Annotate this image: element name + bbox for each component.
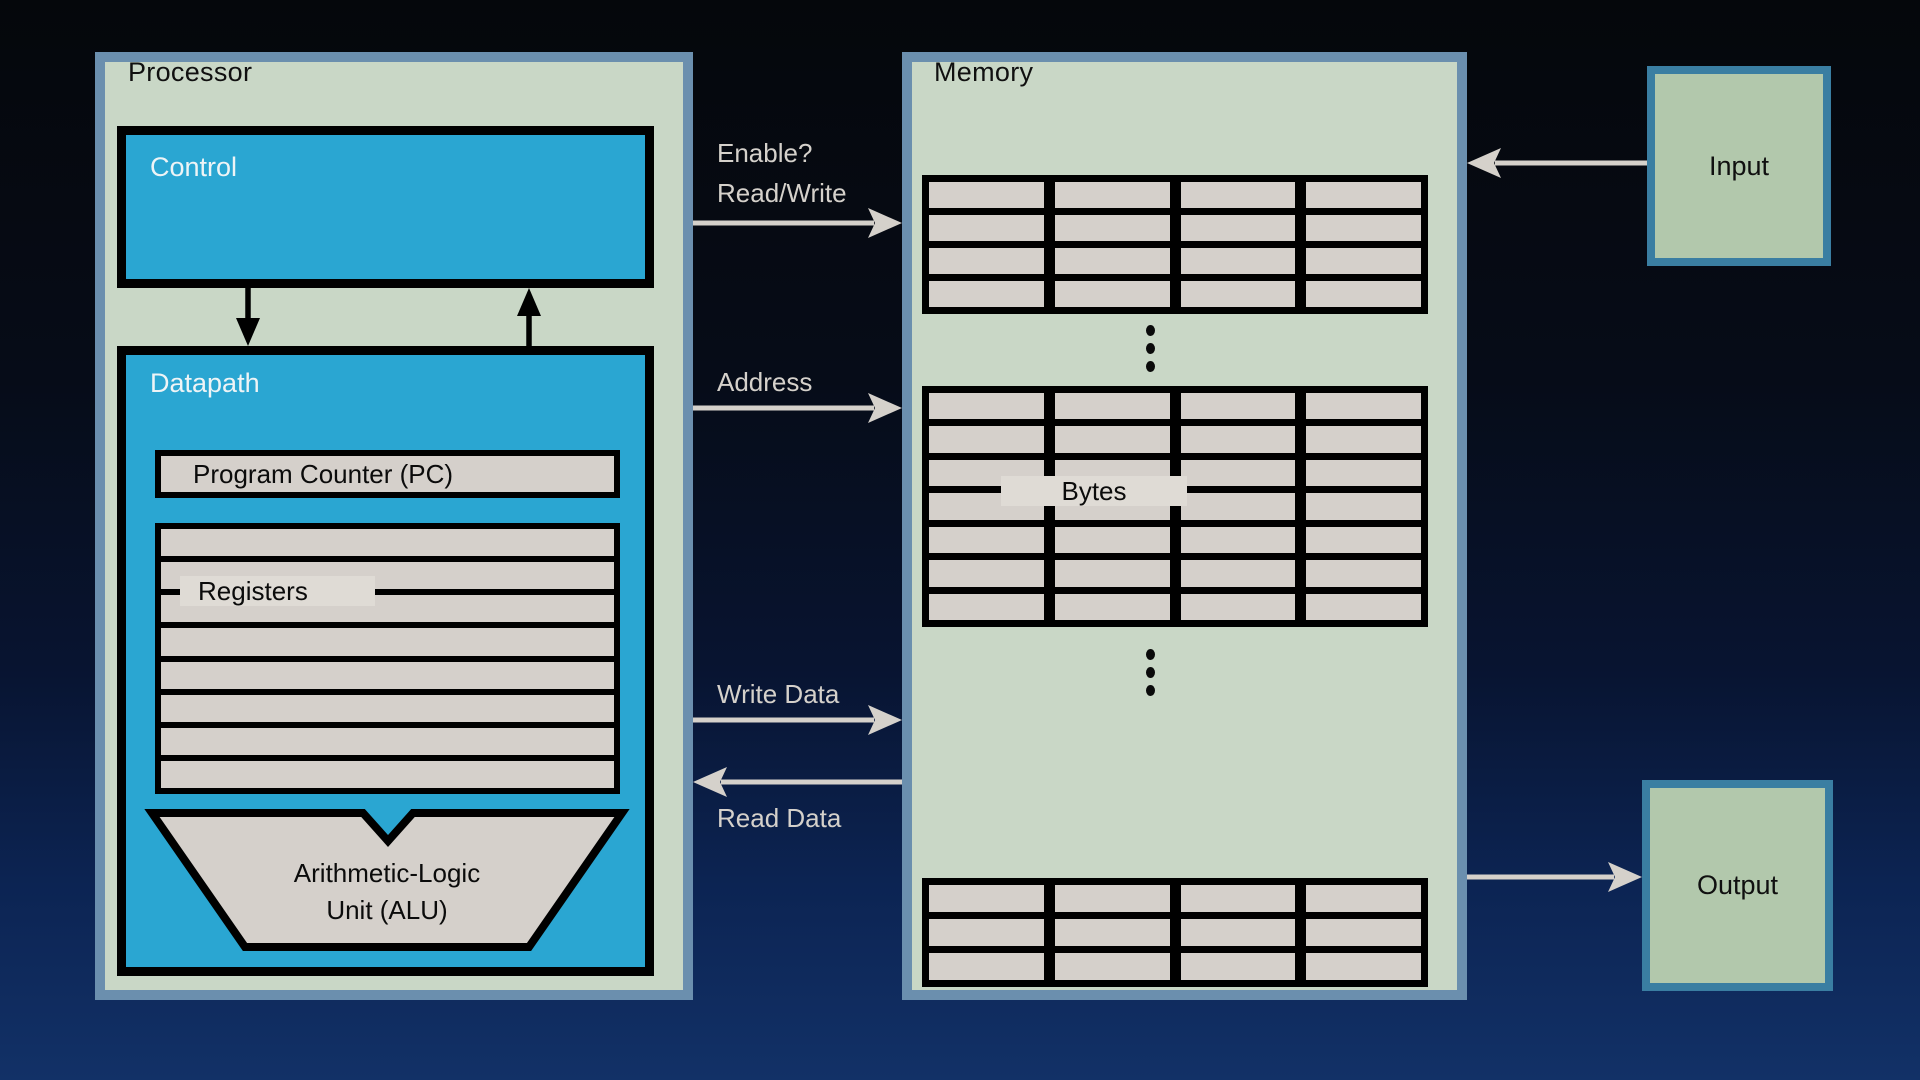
byte-cell	[1306, 182, 1421, 208]
byte-cell	[161, 728, 614, 755]
byte-cell	[1055, 393, 1170, 419]
byte-cell	[161, 761, 614, 788]
registers-label-strip: Registers	[180, 576, 375, 606]
read-write-label: Read/Write	[717, 173, 847, 213]
alu-label-line2: Unit (ALU)	[237, 892, 537, 929]
byte-cell	[1181, 460, 1296, 486]
byte-cell	[1306, 953, 1421, 980]
input-to-memory-arrow	[1467, 148, 1647, 178]
byte-cell	[1306, 426, 1421, 452]
byte-cell	[1181, 393, 1296, 419]
input-box: Input	[1647, 66, 1831, 266]
enable-readwrite-label: Enable? Read/Write	[717, 133, 847, 213]
alu-label-line1: Arithmetic-Logic	[237, 855, 537, 892]
read-data-arrow	[693, 767, 902, 797]
byte-cell	[1306, 560, 1421, 586]
byte-cell	[1055, 426, 1170, 452]
byte-cell	[1181, 281, 1296, 307]
byte-cell	[1306, 215, 1421, 241]
byte-cell	[929, 953, 1044, 980]
byte-cell	[1055, 281, 1170, 307]
byte-cell	[929, 594, 1044, 620]
memory-bytes-table-middle	[922, 386, 1428, 627]
processor-title: Processor	[128, 57, 252, 88]
registers-label: Registers	[198, 576, 308, 607]
byte-cell	[929, 215, 1044, 241]
byte-cell	[1181, 919, 1296, 946]
byte-cell	[1181, 594, 1296, 620]
byte-cell	[1306, 594, 1421, 620]
datapath-label: Datapath	[150, 368, 260, 399]
control-block	[117, 126, 654, 288]
byte-cell	[1181, 953, 1296, 980]
byte-cell	[929, 281, 1044, 307]
byte-cell	[1055, 953, 1170, 980]
address-label: Address	[717, 362, 812, 402]
memory-bytes-table-bottom	[922, 878, 1428, 987]
byte-cell	[1306, 885, 1421, 912]
byte-cell	[929, 560, 1044, 586]
byte-cell	[1055, 560, 1170, 586]
input-label: Input	[1709, 151, 1769, 182]
byte-cell	[929, 885, 1044, 912]
byte-cell	[1306, 393, 1421, 419]
byte-cell	[1181, 885, 1296, 912]
program-counter-label: Program Counter (PC)	[193, 459, 453, 490]
byte-cell	[1181, 248, 1296, 274]
alu-label: Arithmetic-Logic Unit (ALU)	[237, 855, 537, 929]
byte-cell	[929, 393, 1044, 419]
byte-cell	[1306, 493, 1421, 519]
byte-cell	[1181, 560, 1296, 586]
write-data-label: Write Data	[717, 674, 839, 714]
diagram-stage: Processor Control Datapath Program Count…	[0, 0, 1920, 1080]
control-label: Control	[150, 152, 237, 183]
byte-cell	[1306, 527, 1421, 553]
output-box: Output	[1642, 780, 1833, 991]
byte-cell	[1181, 215, 1296, 241]
byte-cell	[161, 529, 614, 556]
registers-table	[155, 523, 620, 794]
ellipsis-dots-top	[1144, 318, 1156, 372]
output-label: Output	[1697, 870, 1778, 901]
byte-cell	[1306, 919, 1421, 946]
byte-cell	[1181, 182, 1296, 208]
byte-cell	[1306, 248, 1421, 274]
bytes-label: Bytes	[1061, 476, 1126, 507]
byte-cell	[929, 426, 1044, 452]
memory-title: Memory	[934, 57, 1033, 88]
byte-cell	[1055, 594, 1170, 620]
read-data-label: Read Data	[717, 798, 841, 838]
byte-cell	[1055, 182, 1170, 208]
byte-cell	[1306, 281, 1421, 307]
bytes-label-strip: Bytes	[1001, 476, 1187, 506]
memory-to-output-arrow	[1467, 862, 1642, 892]
enable-label: Enable?	[717, 133, 847, 173]
byte-cell	[929, 919, 1044, 946]
byte-cell	[161, 695, 614, 722]
byte-cell	[1181, 527, 1296, 553]
memory-bytes-table-top	[922, 175, 1428, 314]
byte-cell	[929, 182, 1044, 208]
byte-cell	[161, 628, 614, 655]
byte-cell	[1055, 215, 1170, 241]
byte-cell	[1306, 460, 1421, 486]
byte-cell	[1181, 426, 1296, 452]
ellipsis-dots-bottom	[1144, 642, 1156, 696]
byte-cell	[1055, 919, 1170, 946]
byte-cell	[1055, 885, 1170, 912]
byte-cell	[1181, 493, 1296, 519]
byte-cell	[1055, 248, 1170, 274]
byte-cell	[1055, 527, 1170, 553]
program-counter-bar: Program Counter (PC)	[155, 450, 620, 498]
byte-cell	[929, 248, 1044, 274]
byte-cell	[929, 527, 1044, 553]
byte-cell	[161, 662, 614, 689]
